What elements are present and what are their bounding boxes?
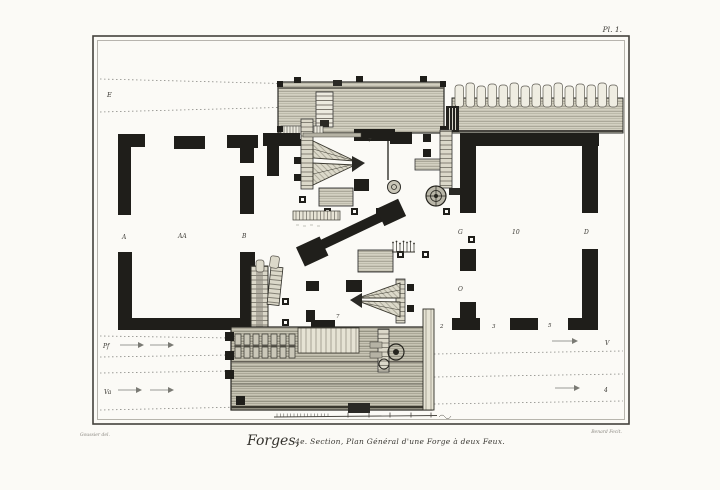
outflow-tab <box>348 403 370 413</box>
grate-strip <box>293 211 340 226</box>
engraved-plate-forges-plan: Pl. 1. <box>0 0 720 490</box>
palisade-channel <box>446 83 623 133</box>
grindstone <box>388 181 401 194</box>
forge-table-upper <box>319 188 353 206</box>
credit-left: Goussier del. <box>80 432 110 438</box>
tuyere-tip-lower <box>350 293 362 308</box>
tail-race-wall <box>423 309 434 410</box>
lower-hearth-walls <box>306 280 362 330</box>
title-rest: 4e. Section, Plan Général d'une Forge à … <box>294 437 505 446</box>
left-room-walls <box>118 134 258 330</box>
forge-table-lower <box>358 250 393 272</box>
label-Va: Va <box>104 389 112 396</box>
label-Pf: Pf <box>102 343 111 350</box>
label-O: O <box>458 286 463 293</box>
label-G: G <box>458 229 463 236</box>
label-E: E <box>106 91 112 99</box>
sluice-planks <box>298 328 359 353</box>
credit-right: Benard Fecit. <box>590 429 622 435</box>
scale-bar <box>274 413 451 419</box>
label-7-bottom: 7 <box>336 314 340 320</box>
sluice-gate-icon <box>446 106 459 132</box>
label-V: V <box>605 340 610 347</box>
label-7-top: 7 <box>368 138 372 144</box>
plate-number: Pl. 1. <box>602 25 622 34</box>
bellows-posts <box>294 139 301 181</box>
label-A: A <box>121 234 127 241</box>
label-4: 4 <box>603 387 608 394</box>
label-5: 5 <box>548 323 552 329</box>
tuyere-tip <box>352 156 365 172</box>
palisade-stakes <box>455 83 618 107</box>
label-AA: AA <box>177 233 187 240</box>
label-D: D <box>583 229 589 236</box>
right-room-walls <box>452 133 599 330</box>
label-B: B <box>241 233 247 240</box>
tool-rack <box>392 241 415 252</box>
plan-drawing: Pl. 1. <box>0 0 720 490</box>
label-10: 10 <box>512 229 520 236</box>
right-channel-wheel <box>415 130 460 206</box>
label-2: 2 <box>439 324 444 330</box>
title-script: Forges, <box>246 433 300 449</box>
title-block: Forges, 4e. Section, Plan Général d'une … <box>246 433 505 449</box>
label-3: 3 <box>492 324 496 330</box>
